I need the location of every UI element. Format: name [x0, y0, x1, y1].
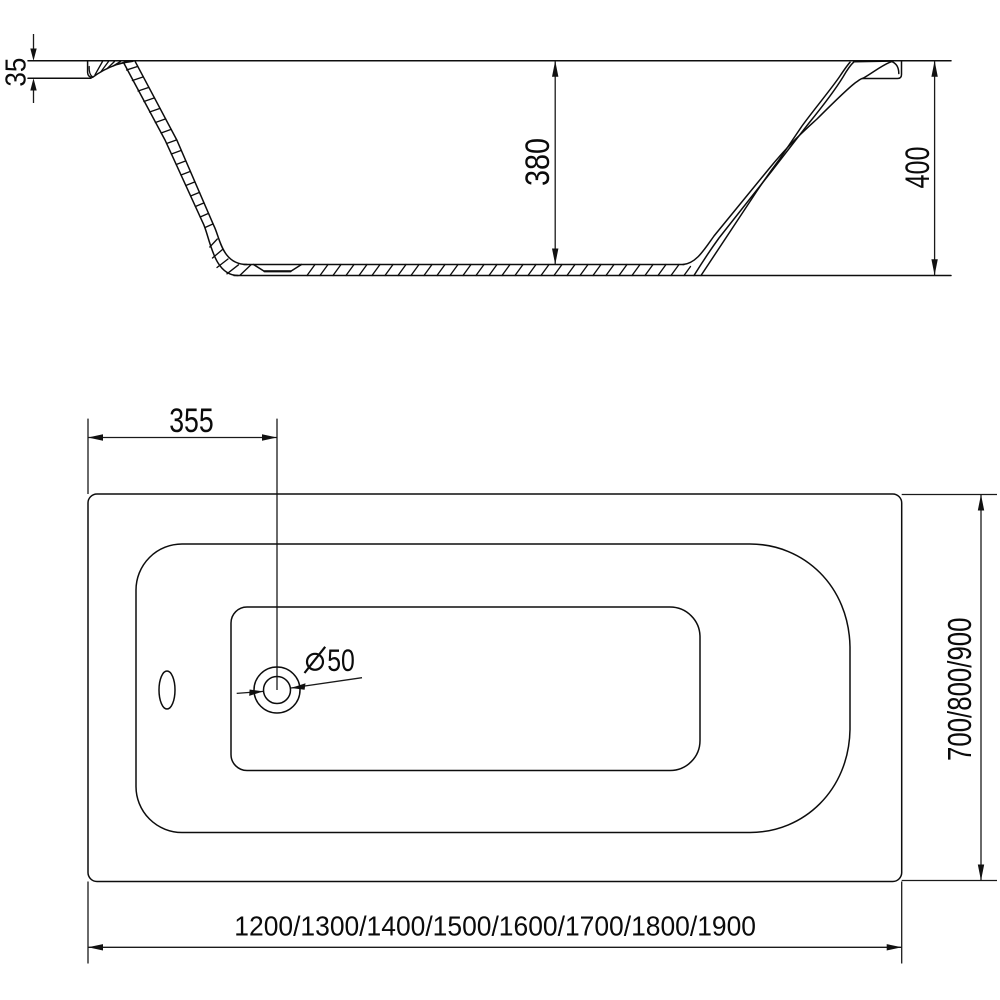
- svg-text:50: 50: [327, 642, 355, 678]
- svg-text:400: 400: [899, 147, 937, 189]
- svg-text:700/800/900: 700/800/900: [942, 618, 979, 762]
- svg-text:380: 380: [519, 138, 557, 186]
- svg-text:35: 35: [0, 58, 32, 87]
- svg-text:1200/1300/1400/1500/1600/1700/: 1200/1300/1400/1500/1600/1700/1800/1900: [234, 910, 756, 942]
- svg-text:355: 355: [169, 402, 214, 440]
